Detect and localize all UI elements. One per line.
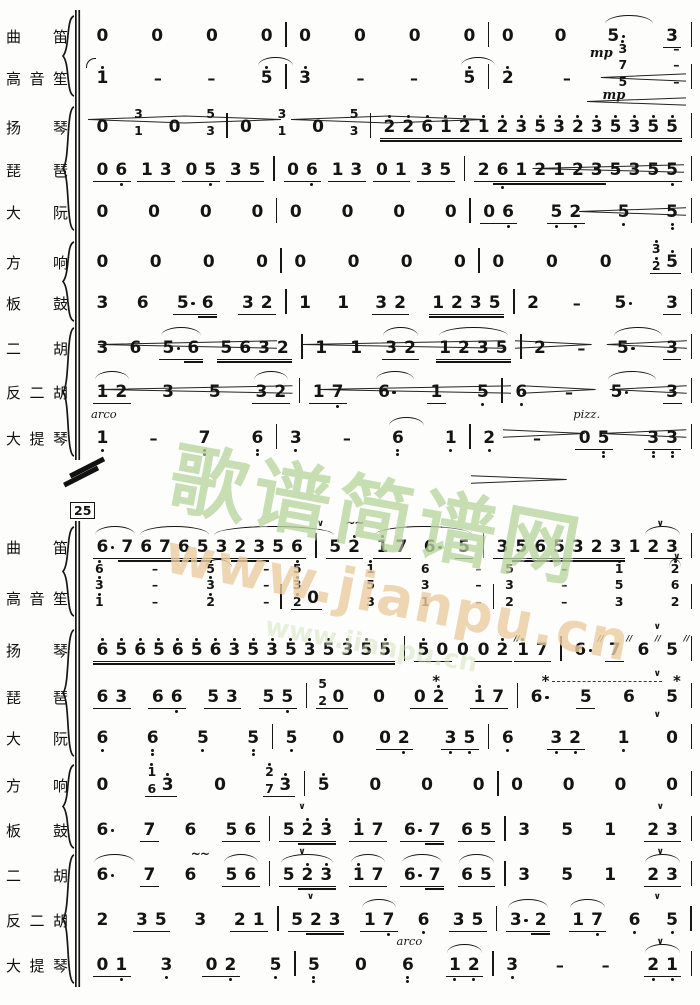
beat-cell: 6: [388, 417, 407, 461]
octave-dot: [274, 976, 277, 979]
dash-note: –: [150, 563, 160, 576]
octave-dot: [406, 976, 409, 979]
note-digit: 3: [650, 243, 663, 256]
octave-dot: [671, 455, 674, 458]
note-digit: 7: [616, 59, 629, 72]
chord-note: 6: [93, 559, 106, 576]
tremolo-star-icon: *: [432, 674, 440, 689]
octave-dot: [203, 449, 206, 452]
note-digit: 3: [616, 43, 629, 56]
octave-dot: [671, 451, 674, 454]
note-digit: 3: [291, 579, 304, 592]
measure: 2–05pizz.33: [471, 417, 691, 461]
beat-cell: –: [529, 417, 544, 461]
note: 0: [352, 944, 371, 988]
measure: 013025: [84, 944, 294, 988]
note-digit: 5: [364, 579, 377, 592]
chord-note: 3: [650, 239, 663, 256]
slur-arc: [376, 371, 415, 380]
score-sheet: 曲笛00000000005mp3高音笙1––53––52–375mp–––扬琴0…: [0, 0, 700, 1005]
octave-dot: [256, 449, 259, 452]
note-digit: 6: [419, 563, 432, 576]
underline-and-dots-below: [503, 975, 522, 988]
slur-arc: [605, 15, 653, 24]
system-braces: [55, 0, 85, 1005]
dash-note: –: [552, 956, 567, 975]
octave-dot: [472, 978, 475, 981]
beat-cell: –: [339, 417, 354, 461]
dash-note: –: [671, 43, 681, 56]
note: 1: [93, 417, 112, 461]
beat-cell: 3: [157, 944, 176, 988]
note: 6: [399, 944, 418, 988]
beam-underline: [663, 449, 682, 451]
dash-note: –: [473, 563, 483, 576]
beat-cell: 5: [305, 944, 324, 988]
note-digit: 5: [305, 956, 324, 975]
trill-wave-icon: ~~: [345, 517, 363, 529]
underline-and-dots-below: [663, 975, 682, 988]
note-digit: 1: [145, 766, 158, 779]
note-digit: 3: [503, 579, 516, 592]
augmentation-dot: [111, 546, 115, 550]
beat-cell: 5: [266, 944, 285, 988]
note-digit: 3: [419, 579, 432, 592]
note-digit: 2: [263, 766, 276, 779]
note-digit: 1: [93, 429, 112, 448]
breath-mark-icon: ∨: [657, 848, 664, 857]
note-digit: 0: [575, 429, 594, 448]
underline-and-dots-below: [157, 975, 176, 988]
note-digit: 7: [195, 429, 214, 448]
octave-dot: [396, 453, 399, 456]
beat-cell: 3: [503, 944, 522, 988]
breath-mark-icon: ∨: [298, 848, 305, 857]
slur-arc: [389, 417, 424, 426]
underline-and-dots-below: [339, 448, 354, 461]
note-digit: 2: [221, 956, 240, 975]
beat-cell: 3: [286, 417, 305, 461]
note-digit: 1: [441, 429, 460, 448]
note-digit: 1: [613, 563, 626, 576]
octave-dot: [120, 978, 123, 981]
note: 3: [157, 944, 176, 988]
chord-note: 3: [276, 104, 289, 121]
beam-underline: [464, 976, 483, 978]
chord-note: –: [261, 559, 271, 576]
underline-and-dots-below: [480, 448, 499, 461]
breath-mark-icon: ∨: [298, 803, 305, 812]
note-digit: 3: [286, 429, 305, 448]
note: –: [146, 417, 161, 461]
octave-dot: [165, 976, 168, 979]
dash-note: –: [261, 563, 271, 576]
dash-note: –: [559, 563, 569, 576]
note: 3: [503, 944, 522, 988]
note-digit: 6: [248, 429, 267, 448]
chord-note: –: [261, 575, 271, 592]
chord-note: 3: [132, 104, 145, 121]
beam-underline: [575, 449, 594, 451]
beam-underline: [663, 976, 682, 978]
note-digit: 2: [480, 429, 499, 448]
tie-from-previous-icon: [86, 58, 96, 68]
breath-mark-icon: ∨: [657, 520, 664, 529]
beam-underline: [112, 976, 131, 978]
note-digit: 3: [644, 429, 663, 448]
barline: [691, 951, 693, 976]
note: 5: [305, 944, 324, 988]
dash-note: –: [671, 59, 681, 72]
tremolo-slashes-icon: //: [598, 635, 604, 643]
breath-mark-icon: ∨: [654, 893, 661, 902]
dash-note: –: [473, 579, 483, 592]
underline-and-dots-below: [266, 975, 285, 988]
note: –: [552, 944, 567, 988]
beat-cell: 33: [644, 417, 682, 461]
octave-dot: [406, 980, 409, 983]
note-digit: 5: [266, 956, 285, 975]
chord-note: 2: [263, 762, 276, 779]
note-digit: 1: [364, 563, 377, 576]
chord-note: –: [559, 575, 569, 592]
technique-marking: arco: [397, 934, 423, 948]
tremolo-slashes-icon: //: [626, 635, 632, 643]
note-digit: 6: [669, 579, 682, 592]
underline-and-dots-below: [644, 975, 663, 988]
note-digit: 5: [613, 579, 626, 592]
octave-dot: [652, 451, 655, 454]
note: 2: [480, 417, 499, 461]
note: 0: [202, 944, 221, 988]
chord-note: –: [473, 559, 483, 576]
breath-mark-icon: ∨: [657, 803, 664, 812]
hairpin-decrescendo: [471, 475, 568, 484]
note-digit: 3: [93, 579, 106, 592]
beam-underline: [644, 976, 663, 978]
dash-note: –: [150, 579, 160, 592]
note: 5: [594, 417, 613, 461]
octave-dot: [449, 449, 452, 452]
octave-dot: [256, 453, 259, 456]
chord-note: 5: [291, 559, 304, 576]
underline-and-dots-below: [221, 975, 240, 988]
beat-cell: 12: [446, 944, 484, 988]
chord-note: 5: [204, 104, 217, 121]
tremolo-star-icon: *: [542, 674, 550, 689]
octave-dot: [602, 455, 605, 458]
note-digit: 3: [276, 108, 289, 121]
octave-dot: [602, 451, 605, 454]
barline: [691, 424, 693, 449]
tremolo-dashed-line: [552, 681, 662, 682]
chord-note: 3: [291, 575, 304, 592]
chord-note: 5: [503, 559, 516, 576]
note: –: [598, 944, 613, 988]
octave-dot: [396, 449, 399, 452]
beat-cell: 6: [248, 417, 267, 461]
chord-note: –: [473, 575, 483, 592]
breath-mark-icon: ∨: [654, 623, 661, 632]
chord-note: 1: [613, 559, 626, 576]
note: 6: [248, 417, 267, 461]
note-digit: 1: [112, 956, 131, 975]
note: 0: [93, 944, 112, 988]
beam-underline: [202, 976, 221, 978]
octave-dot: [488, 449, 491, 452]
tremolo-slashes-icon: //: [655, 635, 661, 643]
dash-note: –: [339, 429, 354, 448]
underline-and-dots-below: [644, 448, 663, 461]
breath-mark-icon: ∨: [654, 711, 661, 720]
slur-arc: [94, 854, 135, 863]
beam-underline: [644, 449, 663, 451]
octave-dot: [101, 449, 104, 452]
beam-underline: [446, 976, 465, 978]
octave-dot: [511, 976, 514, 979]
note-digit: 3: [157, 956, 176, 975]
beat-cell: 05pizz.: [575, 417, 613, 461]
underline-and-dots-below: [388, 448, 407, 461]
note-digit: 3: [503, 956, 522, 975]
note-digit: 0: [352, 956, 371, 975]
note-digit: 3: [204, 579, 217, 592]
beat-cell: 0: [352, 944, 371, 988]
note-digit: 6: [388, 429, 407, 448]
underline-and-dots-below: [594, 448, 613, 461]
underline-and-dots-below: [248, 448, 267, 461]
dash-note: –: [559, 579, 569, 592]
measure: 3––21∨: [494, 944, 691, 988]
octave-dot: [294, 449, 297, 452]
measure: 1arco–76: [84, 417, 276, 461]
tremolo-star-icon: *: [673, 674, 681, 689]
note-digit: 5: [594, 429, 613, 448]
beat-cell: 2: [480, 417, 499, 461]
chord-note: 7: [616, 55, 629, 72]
beat-cell: –: [146, 417, 161, 461]
octave-dot: [453, 978, 456, 981]
underline-and-dots-below: [112, 975, 131, 988]
octave-dot: [652, 978, 655, 981]
beam-underline: [93, 976, 112, 978]
note-digit: 6: [93, 563, 106, 576]
breath-mark-icon: ∨: [654, 670, 661, 679]
beat-cell: –: [598, 944, 613, 988]
trill-wave-icon: ~~: [191, 848, 209, 860]
chord-note: 3: [419, 575, 432, 592]
chord-note: 6: [669, 575, 682, 592]
underline-and-dots-below: [202, 975, 221, 988]
underline-and-dots-below: [552, 975, 567, 988]
underline-and-dots-below: [529, 448, 544, 461]
beat-cell: 6arco: [399, 944, 418, 988]
slur-arc: [608, 371, 656, 380]
note-digit: 3: [663, 429, 682, 448]
beat-cell: 21∨: [644, 944, 682, 988]
note: 5: [266, 944, 285, 988]
staff-row-cello-s2: 013025506arco123––21∨: [84, 918, 692, 988]
breath-mark-icon: ∨: [307, 893, 314, 902]
underline-and-dots-below: [305, 975, 324, 988]
note: 3: [286, 417, 305, 461]
note-digit: 5: [316, 678, 329, 691]
dash-note: –: [146, 429, 161, 448]
measure: 3–61: [277, 417, 469, 461]
note: 1: [441, 417, 460, 461]
note-digit: 2: [464, 956, 483, 975]
note-digit: 1: [446, 956, 465, 975]
chord-note: 1: [364, 559, 377, 576]
note-digit: 6: [399, 956, 418, 975]
tremolo-slashes-icon: //: [684, 635, 690, 643]
chord-note: 3: [93, 575, 106, 592]
measure: 506arco12: [296, 944, 493, 988]
note-digit: 5: [348, 108, 361, 121]
underline-and-dots-below: [441, 448, 460, 461]
underline-and-dots-below: [286, 448, 305, 461]
technique-marking: pizz.: [573, 407, 600, 421]
augmentation-dot: [438, 546, 442, 550]
chord-note: –: [150, 575, 160, 592]
underline-and-dots-below: [663, 448, 682, 461]
octave-dot: [671, 978, 674, 981]
staff-row-cello-s1: 1arco–763–612–05pizz.33: [84, 391, 692, 461]
note-digit: 5: [204, 108, 217, 121]
breath-mark-icon: ∨: [657, 938, 664, 947]
beat-cell: 7: [195, 417, 214, 461]
note-digit: 2: [644, 956, 663, 975]
chord-note: 5: [348, 104, 361, 121]
breath-mark-icon: ∨: [317, 520, 324, 529]
octave-dot: [312, 980, 315, 983]
chord-note: 3: [503, 575, 516, 592]
chord-note: –: [150, 559, 160, 576]
chord-note: 3: [616, 39, 629, 56]
note-digit: 5: [291, 563, 304, 576]
octave-dot: [312, 976, 315, 979]
note: 3: [663, 417, 682, 461]
dash-note: –: [261, 579, 271, 592]
underline-and-dots-below: [446, 975, 465, 988]
slur-arc: [614, 327, 662, 336]
note-digit: 5: [503, 563, 516, 576]
chord-note: 5: [364, 575, 377, 592]
underline-and-dots-below: [195, 448, 214, 461]
beat-cell: 1: [441, 417, 460, 461]
underline-and-dots-below: [146, 448, 161, 461]
note: 2: [221, 944, 240, 988]
note: 7: [195, 417, 214, 461]
chord-note: 6: [419, 559, 432, 576]
beam-underline: [594, 449, 613, 451]
technique-marking: arco: [91, 407, 117, 421]
octave-dot: [652, 455, 655, 458]
chord-note: 3: [204, 575, 217, 592]
chord-note: 5: [316, 674, 329, 691]
note-digit: 0: [202, 956, 221, 975]
note: –: [339, 417, 354, 461]
octave-dot: [203, 453, 206, 456]
note-digit: 0: [93, 956, 112, 975]
chord-note: –: [559, 559, 569, 576]
beat-cell: –: [552, 944, 567, 988]
chord-note: 1: [145, 762, 158, 779]
beam-underline: [221, 976, 240, 978]
chord-note: 5: [613, 575, 626, 592]
note: –: [529, 417, 544, 461]
dash-note: –: [529, 429, 544, 448]
underline-and-dots-below: [399, 975, 418, 988]
chord-note: –: [671, 55, 681, 72]
note: 3: [644, 417, 663, 461]
underline-and-dots-below: [598, 975, 613, 988]
underline-and-dots-below: [93, 975, 112, 988]
note: 0: [575, 417, 594, 461]
beat-cell: 1arco: [93, 417, 112, 461]
underline-and-dots-below: [352, 975, 371, 988]
breath-mark-icon: ∨: [673, 553, 680, 562]
beat-cell: 01: [93, 944, 131, 988]
underline-and-dots-below: [575, 448, 594, 461]
dash-note: –: [598, 956, 613, 975]
chord-note: –: [671, 39, 681, 56]
octave-dot: [229, 978, 232, 981]
note: 1: [112, 944, 131, 988]
underline-and-dots-below: [464, 975, 483, 988]
note-digit: 3: [132, 108, 145, 121]
beat-cell: 02: [202, 944, 240, 988]
note-digit: 1: [663, 956, 682, 975]
